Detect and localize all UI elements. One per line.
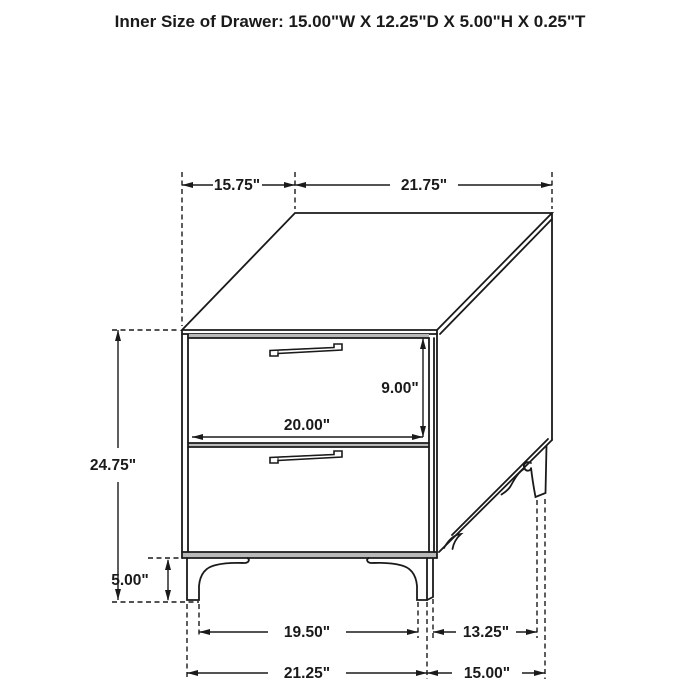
front-left-leg <box>187 558 249 600</box>
bottom-extension-lines <box>187 499 545 679</box>
dimension-top-depth: 15.75" <box>182 172 295 326</box>
drawer-handle-top <box>270 344 342 356</box>
furniture-dimension-diagram: Inner Size of Drawer: 15.00"W X 12.25"D … <box>0 0 700 700</box>
dimension-drawer-width: 20.00" <box>192 417 423 440</box>
cabinet-front-face <box>182 330 437 558</box>
drawer-handle-bottom <box>270 451 342 463</box>
dimension-front-leg-outer-span: 21.25" <box>187 665 427 682</box>
dimension-side-depth: 15.00" <box>427 665 545 682</box>
dim-label-front-leg-outer-span: 21.25" <box>284 665 330 682</box>
nightstand-drawing-canvas: Inner Size of Drawer: 15.00"W X 12.25"D … <box>0 0 700 700</box>
dim-label-leg-height: 5.00" <box>111 572 149 589</box>
dim-label-side-depth: 15.00" <box>464 665 510 682</box>
dim-label-overall-height: 24.75" <box>90 457 136 474</box>
dim-label-drawer-width: 20.00" <box>284 417 330 434</box>
dimension-drawer-height: 9.00" <box>381 338 426 437</box>
dimension-top-width: 21.75" <box>295 172 552 209</box>
dim-label-front-leg-inner-span: 19.50" <box>284 624 330 641</box>
dimension-leg-height: 5.00" <box>111 558 182 601</box>
dimension-side-leg-span: 13.25" <box>433 624 537 641</box>
diagram-title: Inner Size of Drawer: 15.00"W X 12.25"D … <box>115 12 586 31</box>
cabinet-side-panel <box>439 219 552 552</box>
dimension-front-leg-inner-span: 19.50" <box>199 624 418 641</box>
dim-label-top-width: 21.75" <box>401 177 447 194</box>
dim-label-top-depth: 15.75" <box>214 177 260 194</box>
dim-label-drawer-height: 9.00" <box>381 380 419 397</box>
front-right-leg <box>367 534 461 600</box>
back-right-leg <box>502 446 547 497</box>
dim-label-side-leg-span: 13.25" <box>463 624 509 641</box>
cabinet-top-face <box>182 213 552 334</box>
